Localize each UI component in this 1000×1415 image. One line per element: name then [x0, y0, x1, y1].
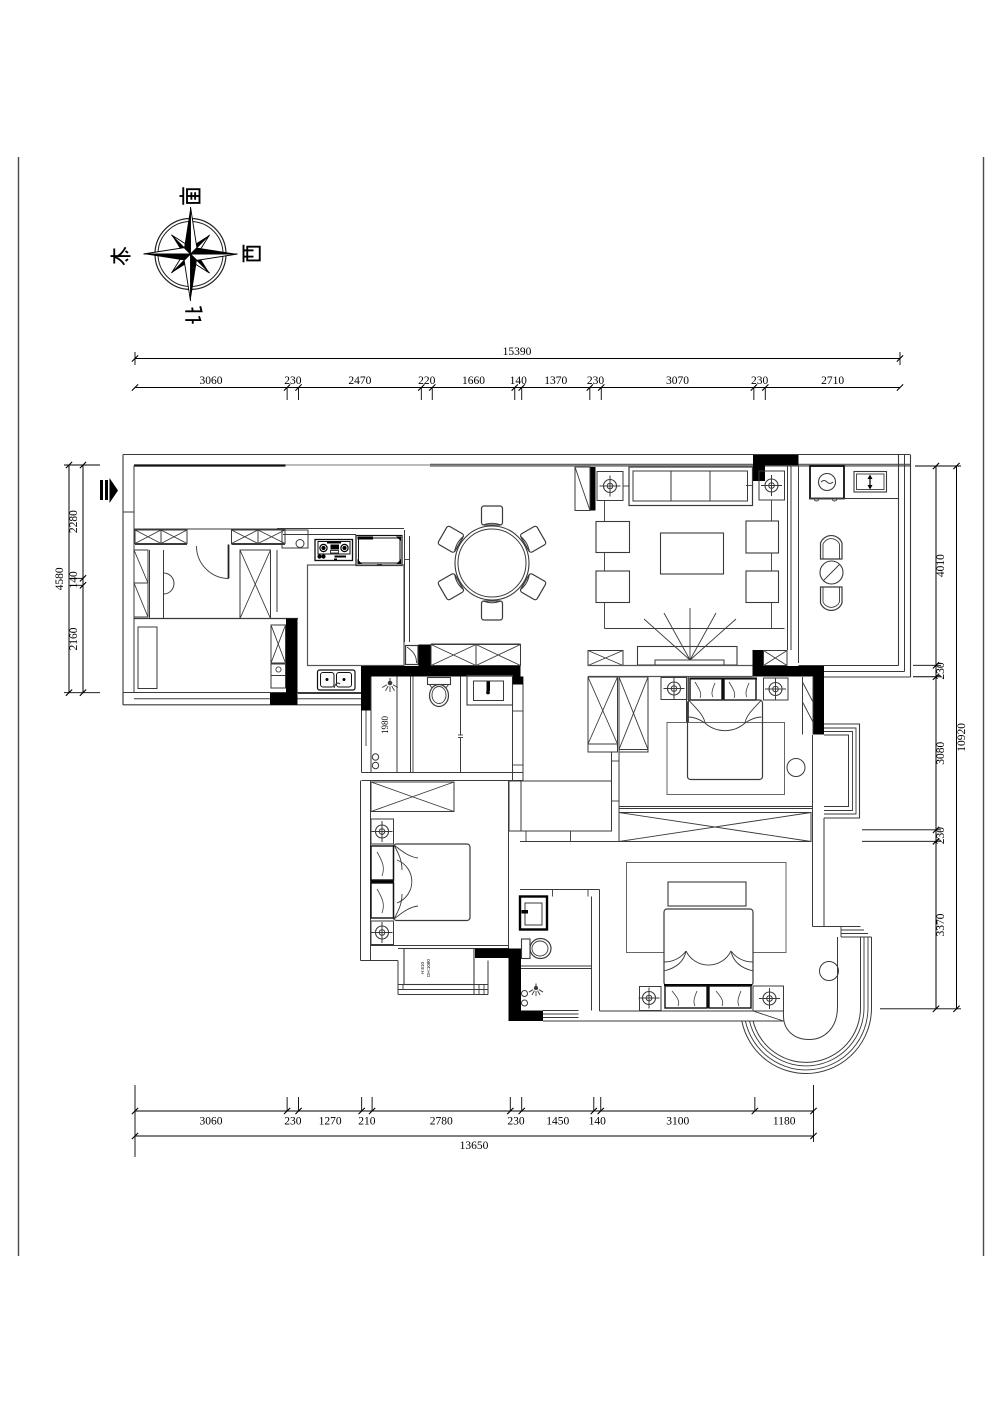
- svg-text:1980: 1980: [380, 716, 390, 735]
- svg-text:DH:1080: DH:1080: [426, 959, 431, 977]
- svg-text:230: 230: [507, 1116, 525, 1128]
- svg-text:230: 230: [935, 827, 947, 845]
- svg-text:10920: 10920: [956, 723, 968, 752]
- svg-text:15390: 15390: [503, 346, 532, 358]
- svg-text:4580: 4580: [54, 567, 66, 590]
- svg-text:3060: 3060: [200, 1116, 223, 1128]
- svg-text:1370: 1370: [544, 375, 567, 387]
- svg-text:1660: 1660: [462, 375, 485, 387]
- svg-text:230: 230: [751, 375, 769, 387]
- svg-text:140: 140: [589, 1116, 607, 1128]
- svg-text:210: 210: [358, 1116, 376, 1128]
- svg-text:140: 140: [68, 571, 80, 589]
- svg-text:1450: 1450: [546, 1116, 569, 1128]
- svg-text:230: 230: [587, 375, 605, 387]
- svg-text:2280: 2280: [68, 510, 80, 533]
- svg-text:3370: 3370: [935, 913, 947, 936]
- svg-text:3100: 3100: [666, 1116, 689, 1128]
- svg-text:230: 230: [284, 1116, 302, 1128]
- svg-text:3060: 3060: [200, 375, 223, 387]
- svg-text:140: 140: [510, 375, 528, 387]
- svg-text:1270: 1270: [319, 1116, 342, 1128]
- svg-text:2780: 2780: [430, 1116, 453, 1128]
- svg-text:4010: 4010: [935, 554, 947, 577]
- svg-text:3080: 3080: [935, 742, 947, 765]
- svg-text:2160: 2160: [68, 627, 80, 650]
- svg-text:230: 230: [935, 662, 947, 680]
- svg-text:2470: 2470: [348, 375, 371, 387]
- svg-text:220: 220: [418, 375, 436, 387]
- svg-text:1180: 1180: [773, 1116, 796, 1128]
- svg-text:3070: 3070: [666, 375, 689, 387]
- svg-text:13650: 13650: [460, 1140, 489, 1152]
- svg-text:2710: 2710: [821, 375, 844, 387]
- svg-text:230: 230: [284, 375, 302, 387]
- svg-text:H:610: H:610: [420, 962, 425, 975]
